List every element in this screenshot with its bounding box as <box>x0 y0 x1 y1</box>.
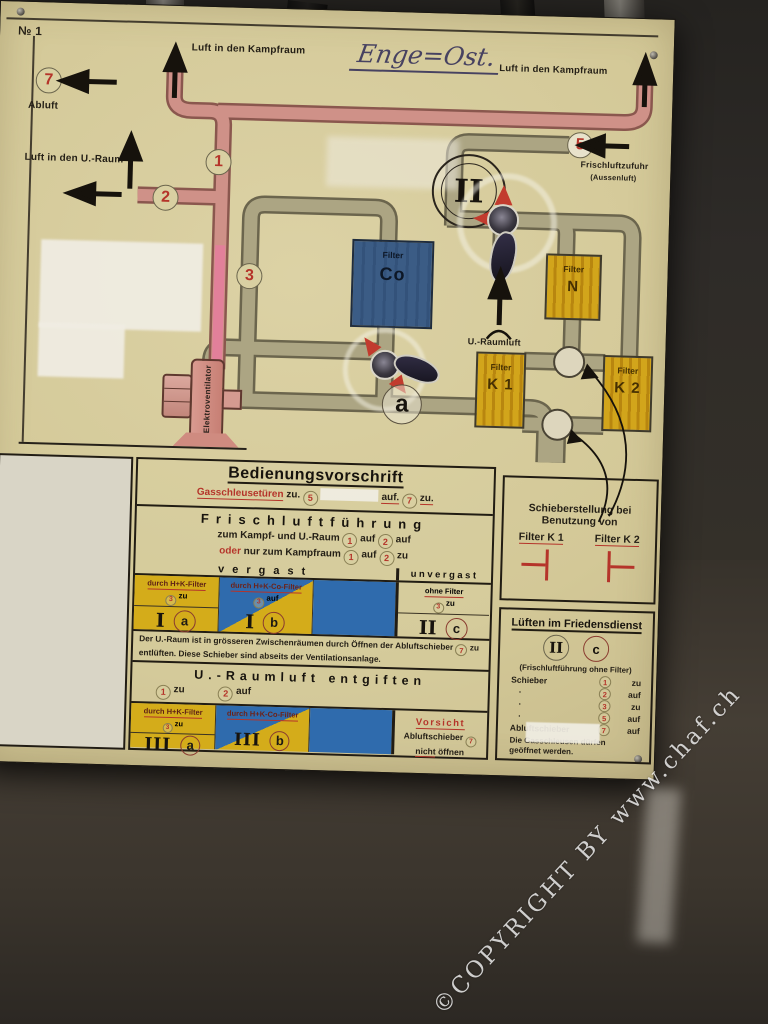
uraumluft-label: U.-Raumluft <box>468 336 521 347</box>
mode-table-entgiften: durch H+K-Filter 3 zu III a durch H+K-Co… <box>130 701 487 757</box>
e1-roman: III <box>144 734 171 755</box>
uraum-label: Luft in den U.-Raum <box>24 152 123 166</box>
filter-k2-box: Filter K 2 <box>601 355 653 432</box>
abluft-label: Abluft <box>28 100 58 112</box>
c1-roman: I <box>155 609 165 631</box>
fd-row-v: zu <box>615 677 641 688</box>
fd-row-v: auf <box>614 725 640 736</box>
fl2-oder: oder <box>219 545 241 557</box>
screw <box>17 7 25 15</box>
fl2-n1: 1 <box>343 549 358 564</box>
fd-row-n: 2 <box>599 688 611 700</box>
c4-letter: c <box>445 617 468 640</box>
fl2-v1: auf <box>361 549 376 560</box>
c2-state: auf <box>266 593 278 602</box>
fd-roman-circle: II <box>543 634 570 661</box>
filter-k2-name: K 2 <box>604 379 650 397</box>
fd-letter-circle: c <box>583 636 610 663</box>
valve-3-badge: 3 <box>236 263 263 290</box>
cell2-hkco-filter: durch H+K-Co-Filter III b <box>215 705 310 752</box>
mode-table-vergast: durch H+K-Filter 3 zu I a durch H+K-Co-F… <box>134 572 491 638</box>
warning-nicht: nicht <box>415 746 436 758</box>
e1-header: durch H+K-Filter <box>144 705 203 719</box>
cell-ohne-filter: ohne Filter 3 zu II c <box>394 582 489 639</box>
fl2-text: nur zum Kampfraum <box>244 546 342 560</box>
sb-k1-label: Filter K 1 <box>519 531 564 545</box>
plate-number: № 1 <box>18 24 42 39</box>
unvergast-header: unvergast <box>396 568 490 583</box>
cell2-warning: Vorsicht Abluftschieber 7 nicht öffnen <box>391 710 486 757</box>
k2-position-symbol <box>594 550 639 585</box>
fd-mode-circles: II c <box>500 633 653 663</box>
e1-letter: a <box>180 735 201 756</box>
fl1-text: zum Kampf- und U.-Raum <box>217 529 339 543</box>
warning-line1: Abluftschieber 7 <box>394 730 485 748</box>
fd-row-n: 3 <box>598 700 610 712</box>
cell2-hk-filter: durch H+K-Filter 3 zu III a <box>130 703 216 749</box>
gas-lock-label: Gasschleusetüren <box>197 487 284 501</box>
valve-II-pointer-up <box>494 185 513 205</box>
blank-panel-box <box>0 453 133 750</box>
fl2-v2: zu <box>397 550 408 561</box>
fl1-n1: 1 <box>342 533 357 548</box>
frischluftzufuhr-label: Frischluftzufuhr <box>580 159 648 171</box>
e1-n: 3 <box>162 723 172 733</box>
cell2-blue-blank <box>309 708 392 754</box>
fan-body: Elektroventilator <box>189 358 225 439</box>
fl1-v2: auf <box>396 534 411 545</box>
ent-v2: auf <box>236 686 251 697</box>
slider-junction-upper <box>553 346 586 379</box>
warning-oeffnen: öffnen <box>438 746 464 757</box>
filter-k1-name: K 1 <box>477 375 523 393</box>
e2-roman: III <box>234 730 261 751</box>
fd-row-v: zu <box>614 701 640 712</box>
fd-row-n: 5 <box>598 712 610 724</box>
c4-n: 3 <box>433 602 444 613</box>
warning-title: Vorsicht <box>416 717 466 730</box>
handwritten-title: Enge=Ost. <box>349 39 504 75</box>
worn-patch <box>39 239 203 331</box>
frame-line <box>22 36 35 442</box>
e2-letter: b <box>270 731 291 752</box>
ent-v1: zu <box>173 684 184 695</box>
gas-lock-valve7: 7 <box>402 493 417 508</box>
filter-co-name: Co <box>353 263 432 286</box>
fan-outlet <box>222 389 243 410</box>
filter-k1-box: Filter K 1 <box>474 351 526 428</box>
c2-roman: I <box>245 611 255 633</box>
c1-header: durch H+K-Filter <box>147 577 206 591</box>
c2-header: durch H+K-Co-Filter <box>230 579 302 593</box>
c1-letter: a <box>173 610 196 633</box>
fl1-v1: auf <box>360 533 375 544</box>
warning-l1: Abluftschieber <box>404 730 464 742</box>
valve-7-badge: 7 <box>35 67 62 94</box>
gas-lock-t3: zu. <box>420 493 434 505</box>
cell-hkco-filter: durch H+K-Co-Filter 3 auf I b <box>218 577 313 634</box>
fd-row-v: auf <box>615 689 641 700</box>
filter-co-caption: Filter <box>354 249 432 261</box>
filter-n-box: Filter N <box>544 253 602 321</box>
filter-k2-caption: Filter <box>605 365 651 376</box>
fd-row-n: 1 <box>599 676 611 688</box>
valve-1-badge: 1 <box>205 149 232 176</box>
gas-lock-t1: zu. <box>286 489 300 500</box>
note-n: 7 <box>455 644 467 656</box>
kampfraum-left-label: Luft in den Kampfraum <box>192 42 306 56</box>
c1-state: zu <box>178 591 187 600</box>
peacetime-ventilation-box: Lüften im Friedensdienst II c (Frischluf… <box>495 607 655 764</box>
aussenluft-label: (Aussenluft) <box>590 173 636 183</box>
sb-filter-labels: Filter K 1 Filter K 2 <box>503 530 655 547</box>
sb-k2-label: Filter K 2 <box>595 533 640 547</box>
gas-lock-t2: auf. <box>381 492 399 504</box>
fd-row-v: auf <box>614 713 640 724</box>
sb-symbols <box>502 547 655 585</box>
filter-k1-caption: Filter <box>478 361 524 372</box>
instructions-title: Bedienungsvorschrift <box>228 465 404 489</box>
c4-roman: II <box>418 616 436 638</box>
fd-roman: II <box>549 639 564 657</box>
ent-n2: 2 <box>218 686 233 701</box>
fan-motor <box>161 374 192 419</box>
frame-line <box>6 17 658 37</box>
valve-2-badge: 2 <box>152 184 179 211</box>
slider-position-box: Schieberstellung bei Benutzung von Filte… <box>499 475 658 604</box>
position-a-badge: a <box>381 384 422 425</box>
valve-5-badge: 5 <box>567 132 594 159</box>
position-a-letter: a <box>395 390 409 418</box>
gas-lock-valve5: 5 <box>303 490 318 505</box>
e2-header: durch H+K-Co-Filter <box>227 707 299 721</box>
screw <box>650 51 658 59</box>
worn-patch <box>525 722 600 744</box>
ent-n1: 1 <box>156 684 171 699</box>
k1-position-symbol <box>518 548 563 583</box>
c4-header: ohne Filter <box>425 585 464 598</box>
fl1-n2: 2 <box>378 534 393 549</box>
c4-state: zu <box>446 598 455 607</box>
worn-patch <box>38 322 125 378</box>
c2-letter: b <box>263 611 286 634</box>
cell-hk-filter: durch H+K-Filter 3 zu I a <box>134 574 220 630</box>
fan-label: Elektroventilator <box>201 365 212 433</box>
filter-n-caption: Filter <box>548 263 600 274</box>
photo-scene: № 1 Enge=Ost. 7 Abluft Luft in den Kampf… <box>0 0 768 1024</box>
c1-n: 3 <box>165 594 176 605</box>
ventilation-instruction-panel: № 1 Enge=Ost. 7 Abluft Luft in den Kampf… <box>0 0 676 781</box>
kampfraum-right-label: Luft in den Kampfraum <box>499 63 607 77</box>
cell-blue-blank <box>312 579 395 635</box>
operating-instructions-box: Bedienungsvorschrift Gasschleusetüren zu… <box>128 457 496 760</box>
warning-n: 7 <box>465 736 476 747</box>
slider-junction-lower <box>541 408 574 441</box>
e1-state: zu <box>175 719 184 728</box>
erased-patch <box>321 488 379 502</box>
fd-title: Lüften im Friedensdienst <box>511 617 642 635</box>
filter-n-name: N <box>547 277 599 295</box>
c2-n: 3 <box>253 597 264 608</box>
fl2-n2: 2 <box>379 550 394 565</box>
